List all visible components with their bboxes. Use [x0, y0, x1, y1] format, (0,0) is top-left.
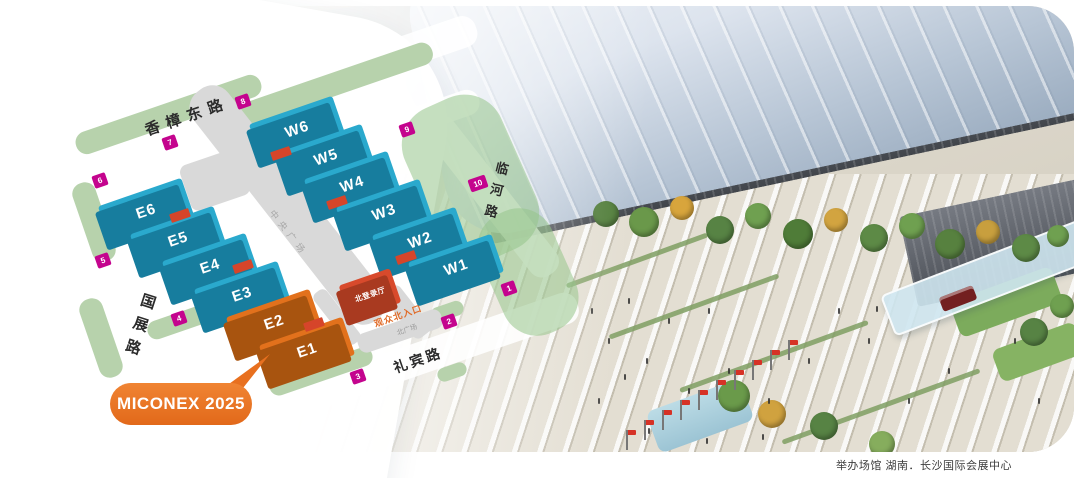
hall-label: W3: [370, 200, 399, 224]
hall-label: E5: [166, 228, 191, 251]
hall-label: E3: [230, 283, 255, 306]
hall-label: E2: [262, 311, 287, 334]
hall-label: E6: [134, 200, 159, 223]
hall-label: E1: [295, 339, 320, 362]
green-strip: [76, 295, 125, 380]
venue-map: 中央广场 观众北入口 北广场 MICONEX 2025 E6E5E4E3E2E1…: [0, 0, 1080, 478]
venue-banner: 中央广场 观众北入口 北广场 MICONEX 2025 E6E5E4E3E2E1…: [0, 0, 1080, 478]
hall-label: W4: [338, 172, 367, 196]
venue-caption: 举办场馆 湖南．长沙国际会展中心: [836, 457, 1012, 473]
hall-label: E4: [198, 255, 223, 278]
hall-label: W6: [283, 117, 312, 141]
hall-label: W1: [442, 255, 471, 279]
registration-hall-label: 北登录厅: [353, 284, 387, 305]
miconex-callout: MICONEX 2025: [110, 383, 252, 425]
hall-label: W5: [312, 145, 341, 169]
hall-label: W2: [406, 228, 435, 252]
